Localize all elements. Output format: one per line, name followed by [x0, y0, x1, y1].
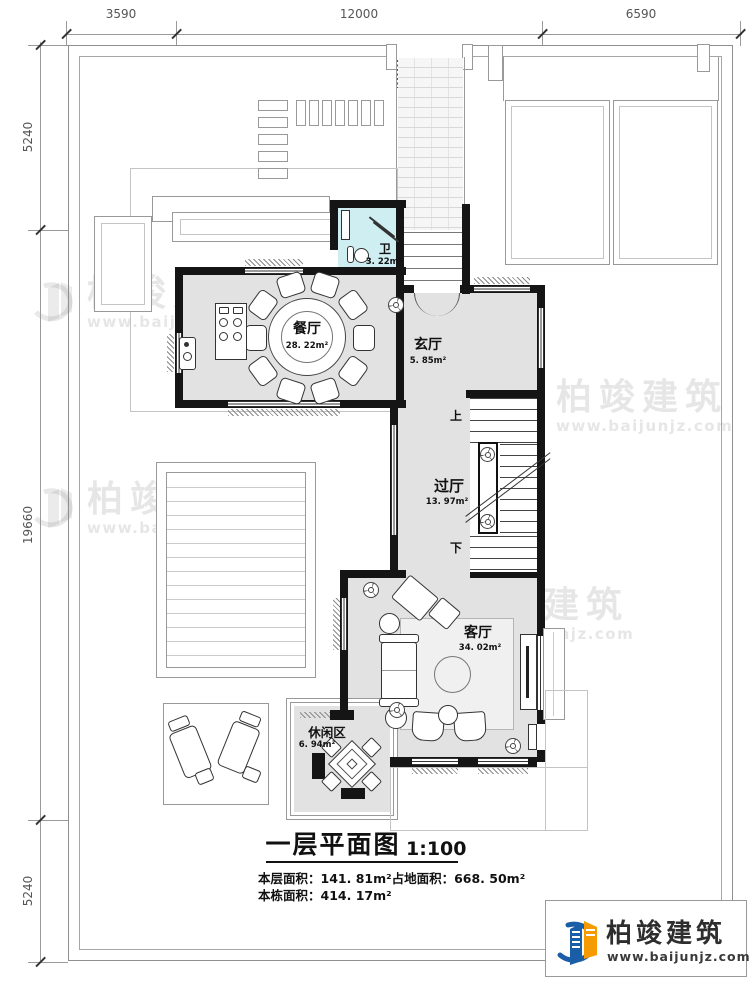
stepping-stone — [335, 100, 345, 126]
dim-top-3: 6590 — [611, 7, 671, 21]
wall — [466, 390, 545, 398]
sofa-cushion-line — [382, 670, 416, 671]
leisure-area: 6. 94m² — [290, 740, 344, 750]
toilet-tank — [347, 246, 354, 263]
wall — [462, 204, 470, 294]
stair-symbol-icon — [480, 514, 495, 529]
wall — [404, 285, 414, 293]
stove-burner — [219, 318, 228, 327]
stepping-stone — [309, 100, 319, 126]
sink-faucet — [184, 342, 189, 347]
dim-ext — [28, 962, 68, 963]
stairs-up-label: 上 — [446, 410, 466, 423]
stepping-stone — [258, 100, 288, 111]
stair-symbol-icon — [480, 447, 495, 462]
stepping-stone — [258, 134, 288, 145]
wall — [537, 750, 545, 762]
brand-box: 柏竣建筑 www.baijunjz.com — [545, 900, 747, 977]
dim-left-2: 19660 — [21, 495, 35, 555]
window-sill-hatch — [245, 259, 303, 266]
planter-inner — [101, 223, 145, 305]
dim-left-3: 5240 — [21, 861, 35, 921]
window — [391, 425, 397, 535]
sofa — [381, 642, 417, 700]
window-sill-hatch — [300, 712, 330, 718]
brand-logo-icon — [552, 909, 604, 969]
boundary-pillar — [697, 44, 710, 72]
planter-inner — [180, 219, 346, 235]
gate-opening — [396, 42, 464, 59]
door-leaf — [528, 724, 537, 750]
bath-label: 卫 — [373, 243, 397, 256]
stove-burner — [233, 318, 242, 327]
foyer-area: 5. 85m² — [398, 356, 458, 366]
ceiling-fan-icon — [363, 582, 379, 598]
dining-label: 餐厅 — [277, 322, 337, 337]
foyer-label: 玄厅 — [398, 338, 458, 353]
hall-label: 过厅 — [419, 478, 479, 495]
dim-left-1: 5240 — [21, 107, 35, 167]
plan-title: 一层平面图 — [262, 831, 404, 859]
floor-plan-canvas: 柏竣建筑 www.baijunjz.com 柏竣建筑 www.baijunjz.… — [0, 0, 750, 982]
wall-stub — [341, 788, 365, 799]
sink-basin — [183, 352, 192, 361]
boundary-pillar — [488, 45, 503, 81]
pool-water — [167, 474, 305, 667]
stair-treads — [470, 398, 537, 444]
ceiling-fan-icon — [388, 297, 404, 313]
window-sill-hatch — [333, 598, 340, 650]
stair-treads — [470, 536, 537, 572]
stepping-stone — [322, 100, 332, 126]
walkway-paving — [398, 58, 463, 230]
driveway-line — [718, 57, 719, 101]
window-sill-hatch — [474, 277, 530, 284]
stove-control — [219, 307, 229, 314]
stepping-stone — [296, 100, 306, 126]
window — [412, 758, 458, 765]
side-table — [438, 705, 458, 725]
living-label: 客厅 — [448, 626, 508, 641]
wall — [537, 390, 545, 577]
area-line-2: 本栋面积：414. 17m² — [258, 885, 392, 904]
window-sill-hatch — [167, 334, 174, 372]
parking-bay-inner — [619, 106, 712, 259]
window — [538, 308, 544, 368]
hall-area: 13. 97m² — [417, 497, 477, 507]
stairs-down-label: 下 — [446, 542, 466, 555]
dim-ext — [28, 820, 68, 821]
dim-ext — [28, 230, 68, 231]
land-area-text: 占地面积：668. 50m² — [392, 871, 526, 886]
stepping-stone — [258, 117, 288, 128]
stepping-stone — [348, 100, 358, 126]
living-area: 34. 02m² — [450, 643, 510, 653]
stepping-stone — [361, 100, 371, 126]
dim-top-2: 12000 — [329, 7, 389, 21]
bath-door-leaf — [341, 210, 350, 240]
leisure-label: 休闲区 — [295, 726, 359, 740]
armchair — [453, 711, 487, 742]
window — [341, 598, 347, 650]
stove-control — [233, 307, 243, 314]
deck-outline — [545, 690, 588, 831]
dining-area: 28. 22m² — [277, 341, 337, 351]
wall-stub — [312, 753, 325, 779]
floor-area-text: 本层面积：141. 81m² — [258, 871, 392, 886]
wall — [330, 200, 406, 208]
wall — [330, 200, 338, 250]
dim-line — [66, 34, 742, 35]
dim-top-1: 3590 — [91, 7, 151, 21]
tv-cabinet — [520, 634, 537, 710]
driveway-line — [503, 57, 504, 101]
ceiling-fan-icon — [505, 738, 521, 754]
wall — [340, 570, 406, 578]
stepping-stone — [258, 151, 288, 162]
ceiling-fan-icon — [389, 702, 405, 718]
window — [478, 758, 528, 765]
coffee-table — [434, 656, 471, 693]
wall — [330, 710, 354, 720]
side-table — [379, 613, 400, 634]
brand-website: www.baijunjz.com — [607, 949, 745, 964]
brand-name: 柏竣建筑 — [606, 913, 744, 950]
bath-area: 3. 22m² — [362, 257, 406, 267]
window-sill-hatch — [228, 409, 340, 416]
parking-bay-inner — [511, 106, 604, 259]
tv — [526, 646, 529, 698]
stepping-stone — [374, 100, 384, 126]
stove-burner — [233, 332, 242, 341]
title-underline — [266, 861, 458, 863]
wall — [537, 570, 545, 636]
stepping-stone — [258, 168, 288, 179]
entry-steps — [402, 232, 462, 284]
stove-burner — [219, 332, 228, 341]
dining-chair — [245, 325, 267, 351]
dining-chair — [353, 325, 375, 351]
plan-scale: 1:100 — [406, 838, 458, 860]
window — [474, 286, 530, 292]
dim-ext — [28, 45, 68, 46]
dim-line — [40, 42, 41, 963]
